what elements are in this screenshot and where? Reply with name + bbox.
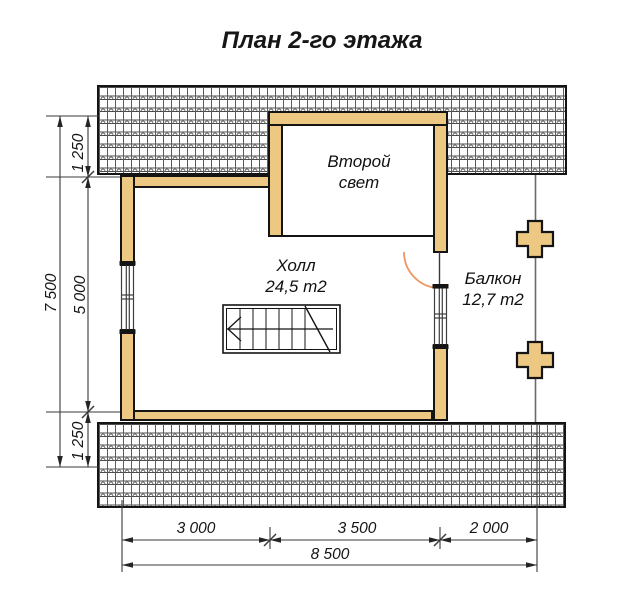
dim-vertical-seg-1: 1 250 xyxy=(70,132,88,175)
balcony-post-bottom xyxy=(517,342,553,378)
door-swing-arc xyxy=(404,252,440,288)
wall-hall-left-upper xyxy=(120,175,135,266)
wall-second-light-top xyxy=(268,111,448,126)
dim-horizontal-seg-1: 3 000 xyxy=(175,520,218,538)
dim-vertical-total: 7 500 xyxy=(43,272,61,315)
wall-hall-left-lower xyxy=(120,329,135,421)
room-label-second-light-line1: Второй xyxy=(327,151,390,172)
room-label-hall: Холл 24,5 m2 xyxy=(265,255,326,297)
room-label-second-light-line2: свет xyxy=(327,172,390,193)
room-label-second-light: Второй свет xyxy=(327,151,390,193)
page-title: План 2-го этажа xyxy=(222,27,423,55)
room-label-hall-name: Холл xyxy=(265,255,326,276)
wall-right-upper xyxy=(433,124,448,253)
wall-hall-top xyxy=(133,175,270,188)
window-left xyxy=(120,261,136,334)
wall-right-lower xyxy=(433,344,448,421)
room-label-balcony: Балкон 12,7 m2 xyxy=(462,268,523,310)
room-label-hall-area: 24,5 m2 xyxy=(265,276,326,297)
dim-horizontal-seg-2: 3 500 xyxy=(336,520,379,538)
dim-vertical-seg-2: 5 000 xyxy=(72,274,90,317)
wall-hall-bottom xyxy=(133,410,433,421)
dim-horizontal-total: 8 500 xyxy=(309,546,352,564)
room-label-balcony-area: 12,7 m2 xyxy=(462,289,523,310)
window-right xyxy=(433,284,449,349)
second-light-open-edge xyxy=(283,235,433,237)
dim-vertical-seg-3: 1 250 xyxy=(70,420,88,463)
wall-second-light-left xyxy=(268,124,283,237)
roof-hatch-bottom xyxy=(97,422,566,508)
balcony-post-top xyxy=(517,221,553,257)
floor-plan-canvas: План 2-го этажа Второй свет Холл 24,5 m2… xyxy=(0,0,622,600)
stairs-symbol xyxy=(223,305,340,353)
room-label-balcony-name: Балкон xyxy=(462,268,523,289)
dim-horizontal-seg-3: 2 000 xyxy=(468,520,511,538)
